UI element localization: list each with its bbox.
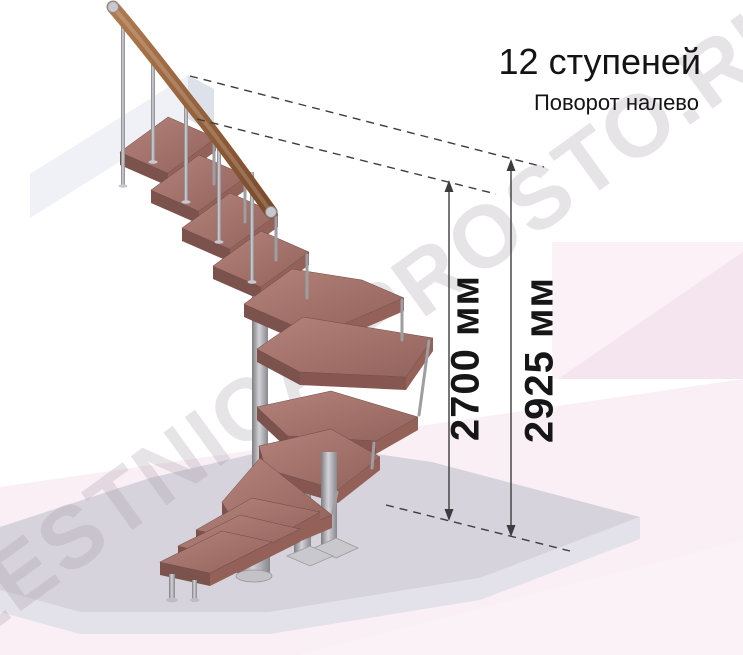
stair-diagram-canvas: LESTNICA-PROSTO.RU	[0, 0, 743, 655]
handrail-end-cap	[108, 2, 119, 13]
extension-line-top-total	[190, 76, 544, 167]
total-height-label: 2925 мм	[518, 277, 563, 443]
steps-count-label: 12 ступеней	[499, 44, 701, 80]
stair-height-label: 2700 мм	[444, 275, 489, 441]
turn-direction-label: Поворот налево	[534, 92, 699, 114]
handrail-end-cap	[266, 207, 277, 218]
